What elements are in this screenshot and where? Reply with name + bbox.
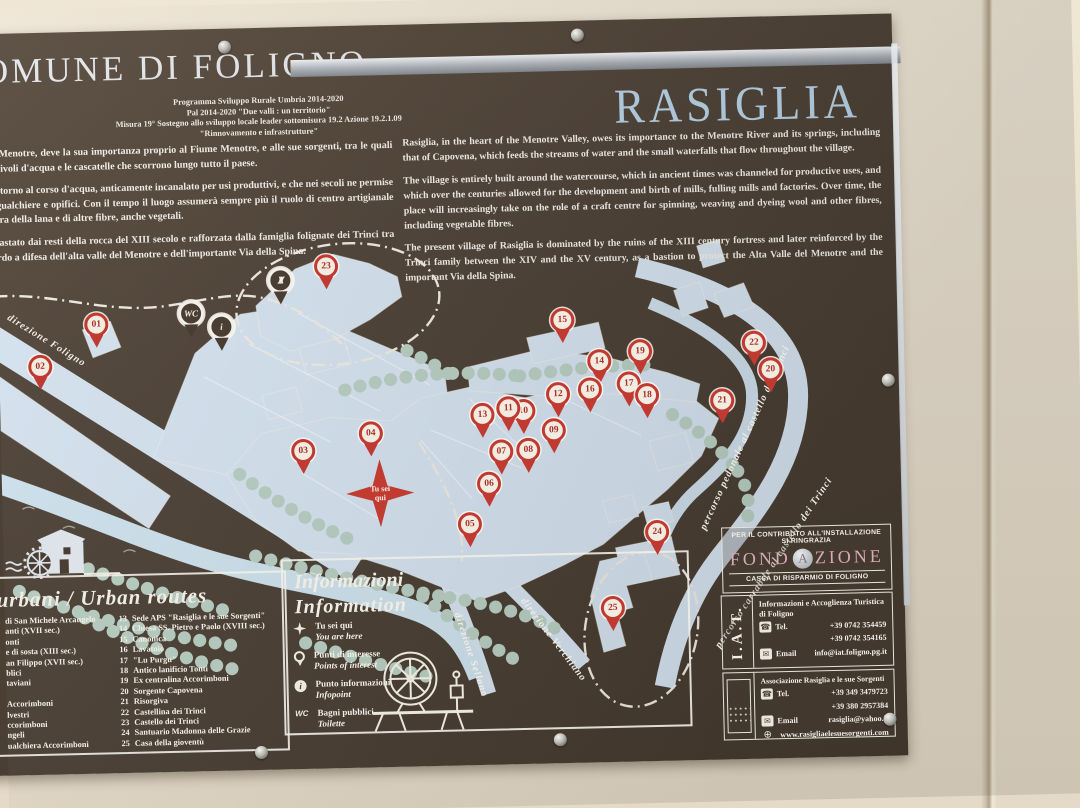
association-logo: [723, 673, 755, 740]
association-phone-1: +39 349 3479723: [807, 687, 888, 698]
foundation-medallion-icon: A: [793, 548, 813, 568]
info-legend-title-en: Information: [295, 594, 408, 620]
page-title: RASIGLIA: [591, 72, 884, 135]
email-icon: ✉: [761, 715, 773, 726]
routes-left-column: di San Michele Arcangeloanti (XVII sec.)…: [5, 615, 108, 752]
association-email: rasiglia@yahoo.it: [807, 714, 888, 725]
foundation-name: FOND A ZIONE: [723, 546, 891, 571]
foundation-credit-box: PER IL CONTRIBUTO ALL'INSTALLAZIONE SI R…: [721, 524, 892, 594]
association-contact-box: Associazione Rasiglia e le sue Sorgenti …: [722, 669, 895, 741]
info-legend-title-it: Informazioni: [294, 569, 403, 594]
phone-icon: ☎: [759, 621, 771, 632]
mill-icon: [3, 525, 120, 580]
sign-board: COMUNE DI FOLIGNO Programma Sviluppo Rur…: [0, 14, 908, 777]
star-icon: [293, 622, 306, 635]
association-phone-2: +39 380 2957384: [807, 700, 888, 711]
iat-phone-2: +39 0742 354165: [806, 633, 887, 644]
wc-icon: WC: [295, 709, 309, 718]
program-text: Programma Sviluppo Rurale Umbria 2014-20…: [103, 92, 414, 141]
foundation-subtitle: CASSA DI RISPARMIO DI FOLIGNO: [729, 570, 885, 587]
urban-routes-title: urbani / Urban routes: [0, 583, 207, 613]
photo-of-sign: COMUNE DI FOLIGNO Programma Sviluppo Rur…: [0, 0, 1080, 808]
phone-icon: ☎: [761, 688, 773, 699]
globe-icon: ⊕: [762, 729, 774, 740]
iat-contact-box: I.A.T. Informazioni e Accoglienza Turist…: [721, 592, 895, 670]
email-icon: ✉: [760, 648, 772, 659]
routes-right-column: 13Sede APS "Rasiglia e le sue Sorgenti"1…: [113, 611, 284, 750]
iat-phone-1: +39 0742 354459: [805, 619, 886, 630]
iat-org-name: Informazioni e Accoglienza Turisticadi F…: [759, 597, 886, 619]
info-icon: i: [294, 680, 306, 692]
iat-email: info@iat.foligno.pg.it: [806, 646, 887, 657]
spinning-wheel-icon: [358, 639, 488, 734]
iat-logo: I.A.T.: [722, 596, 755, 669]
pin-icon: [294, 651, 305, 662]
association-website: www.rasigliaelesuesorgenti.com: [778, 727, 889, 739]
intro-english: Rasiglia, in the heart of the Menotre Va…: [402, 126, 883, 295]
intro-italian: a Valle del Menotre, deve la sua importa…: [0, 139, 395, 275]
association-org-name: Associazione Rasiglia e le sue Sorgenti: [760, 674, 887, 686]
